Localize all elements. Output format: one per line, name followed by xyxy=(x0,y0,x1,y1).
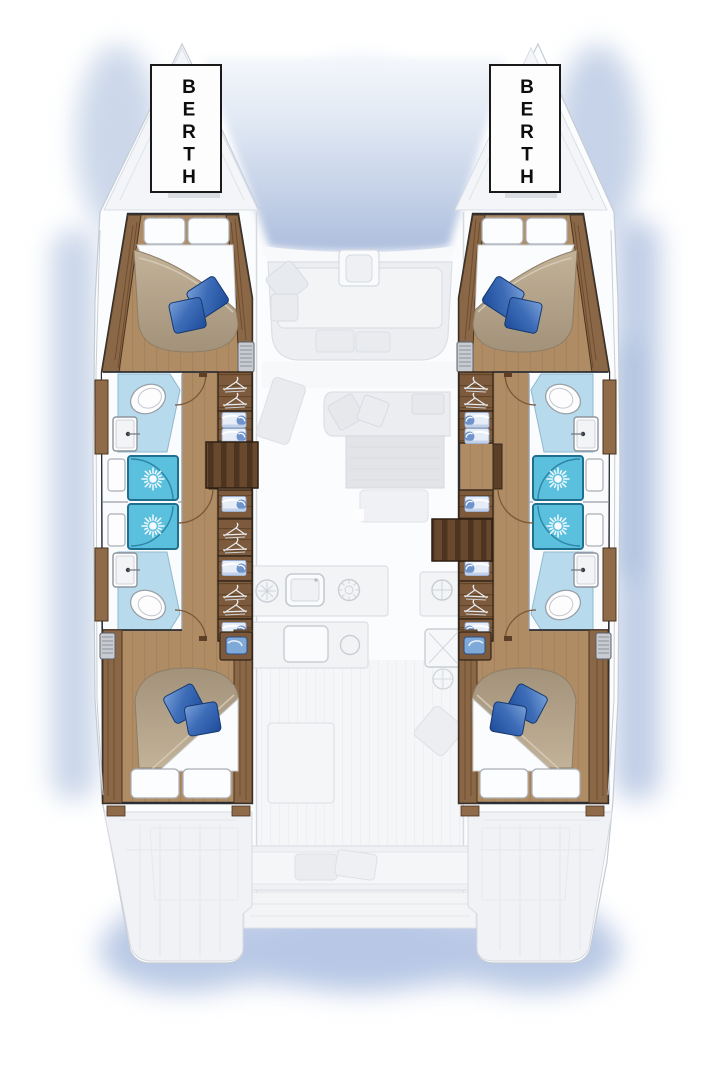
svg-text:E: E xyxy=(183,100,196,121)
svg-text:B: B xyxy=(520,77,534,98)
svg-text:H: H xyxy=(182,167,196,188)
svg-text:T: T xyxy=(183,145,195,166)
svg-text:R: R xyxy=(182,122,196,143)
svg-text:T: T xyxy=(521,145,533,166)
svg-text:B: B xyxy=(182,77,196,98)
svg-text:R: R xyxy=(520,122,534,143)
svg-text:E: E xyxy=(521,100,534,121)
svg-text:H: H xyxy=(520,167,534,188)
